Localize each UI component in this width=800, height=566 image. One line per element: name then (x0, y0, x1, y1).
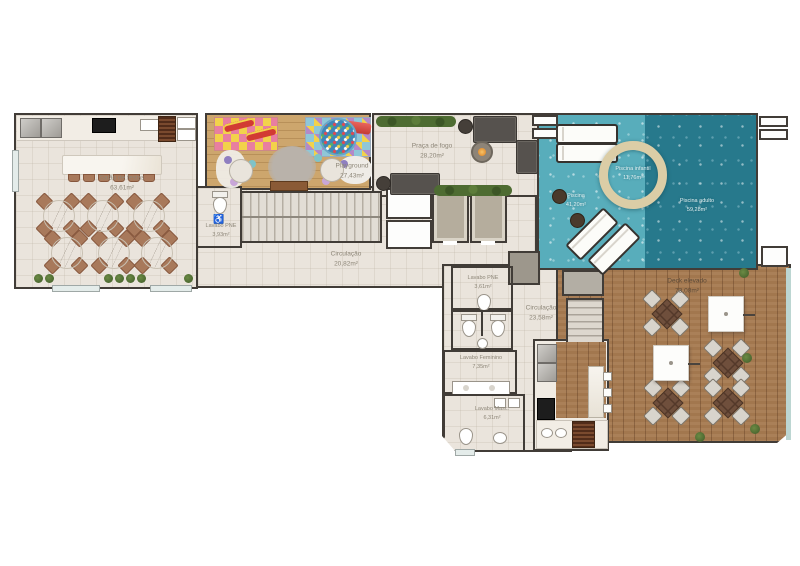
room-area: 41,20m² (566, 201, 586, 210)
room-area: 6,31m² (475, 414, 509, 423)
planter-box (759, 116, 788, 127)
umbrella (653, 345, 689, 381)
room-name: Piscina adulto (680, 197, 714, 206)
room-name: Salão de festas (100, 174, 145, 184)
plant (45, 274, 54, 283)
chair (68, 174, 80, 182)
round-table-set (36, 193, 80, 237)
label-adult-pool: Piscina adulto 59,28m² (680, 197, 714, 215)
plant (34, 274, 43, 283)
label-lavabo-feminino: Lavabo Feminino 7,35m² (460, 354, 502, 372)
window (150, 285, 192, 292)
window (455, 449, 475, 456)
side-table (552, 189, 567, 204)
deck-table-set (644, 291, 688, 335)
round-table-set (80, 193, 124, 237)
vanity-sinks (452, 381, 510, 395)
round-table-set (134, 230, 178, 274)
elevator-door (443, 241, 457, 245)
deck-table-set (645, 380, 689, 424)
stove (537, 398, 555, 420)
fridge (537, 344, 557, 363)
room-name: Lavabo Masc. (475, 405, 509, 414)
label-lavabo-masc: Lavabo Masc. 6,31m² (475, 405, 509, 423)
shaft-room (386, 220, 432, 249)
room-name: Praça de fogo (412, 142, 452, 152)
room-name: Playground (336, 162, 369, 172)
plant (126, 274, 135, 283)
room-area: 28,20m² (412, 152, 452, 162)
sink (493, 432, 507, 444)
hedge (434, 185, 512, 196)
label-circulation-2: Circulação 23,58m² (526, 304, 557, 325)
toy-bench (270, 181, 308, 191)
deck-staircase (566, 298, 604, 346)
round-table-set (126, 193, 170, 237)
room-area: 73,08m² (667, 287, 706, 297)
label-lavabo-pne-2: Lavabo PNE 3,61m² (468, 274, 499, 292)
staircase-main (240, 191, 382, 243)
room-name: Piscina infantil (615, 165, 650, 174)
plant (742, 353, 752, 363)
plant (184, 274, 193, 283)
chair (143, 174, 155, 182)
pedestal-sink (477, 338, 488, 349)
fire-pit (471, 141, 493, 163)
umbrella (708, 296, 744, 332)
plant (104, 274, 113, 283)
room-area: 23,58m² (526, 314, 557, 324)
urinal (508, 398, 520, 408)
fire-flame (478, 148, 486, 156)
side-table (376, 176, 391, 191)
plant (695, 432, 705, 442)
deck-table-set (705, 380, 749, 424)
room-area: 11,76m² (615, 174, 650, 183)
banquet-table (62, 155, 162, 175)
hedge (376, 116, 456, 127)
floor-plan: ♿ (0, 0, 800, 566)
counter-top (177, 117, 196, 129)
planter-box (761, 246, 788, 267)
chair (83, 174, 95, 182)
fridge (41, 118, 62, 138)
barbecue-grill (158, 116, 176, 142)
cooktop (92, 118, 116, 133)
room-area: 7,35m² (460, 363, 502, 372)
stair-landing (562, 270, 604, 296)
fridge (20, 118, 41, 138)
counter-top (177, 129, 196, 141)
fridge (537, 363, 557, 382)
pool-lounger (556, 124, 618, 144)
plant (137, 274, 146, 283)
stall-partition (481, 312, 483, 336)
window (52, 285, 100, 292)
elevator (470, 191, 507, 243)
side-table (458, 119, 473, 134)
room-name: Piscina (566, 192, 586, 201)
round-table-set (91, 230, 135, 274)
kids-table (229, 159, 253, 183)
label-kids-pool: Piscina infantil 11,76m² (615, 165, 650, 183)
room-area: 63,61m² (100, 184, 145, 194)
round-table-set (44, 230, 88, 274)
deck-glass-rail (786, 268, 791, 440)
room-name: Lavabo PNE (206, 222, 237, 231)
ball-pit (319, 118, 357, 156)
room-area: 3,61m² (468, 283, 499, 292)
label-lavabo-pne-1: Lavabo PNE 3,93m² (206, 222, 237, 240)
armchair (516, 140, 538, 174)
bar-island (588, 366, 604, 418)
plant (750, 424, 760, 434)
label-party-hall: Salão de festas 63,61m² (100, 174, 145, 195)
label-circulation-main: Circulação 20,82m² (331, 250, 362, 271)
bar-stool (603, 404, 612, 413)
room-name: Circulação (331, 250, 362, 260)
room-area: 27,43m² (336, 172, 369, 182)
barbecue-grill (572, 421, 595, 448)
planter-box (759, 129, 788, 140)
window (12, 150, 19, 192)
planter-box (532, 115, 558, 126)
bar-stool (603, 388, 612, 397)
kids-chair (314, 154, 322, 162)
room-name: Circulação (526, 304, 557, 314)
sofa (390, 173, 440, 195)
elevator-door (481, 241, 495, 245)
label-fire-plaza: Praça de fogo 28,20m² (412, 142, 452, 163)
planter-box (532, 128, 558, 139)
stair-handrail (242, 216, 380, 218)
room-area: 3,93m² (206, 231, 237, 240)
room-name: Deck elevado (667, 277, 706, 287)
room-area: 59,28m² (680, 206, 714, 215)
room-name: Lavabo Feminino (460, 354, 502, 363)
deck-table-set (705, 340, 749, 384)
label-playground: Playground 27,43m² (336, 162, 369, 183)
label-deck: Deck elevado 73,08m² (667, 277, 706, 298)
bar-stool (603, 372, 612, 381)
room-area: 20,82m² (331, 260, 362, 270)
room-name: Lavabo PNE (468, 274, 499, 283)
plant (739, 268, 749, 278)
sofa (473, 116, 517, 143)
label-pool: Piscina 41,20m² (566, 192, 586, 210)
elevator (432, 191, 469, 243)
plant (115, 274, 124, 283)
